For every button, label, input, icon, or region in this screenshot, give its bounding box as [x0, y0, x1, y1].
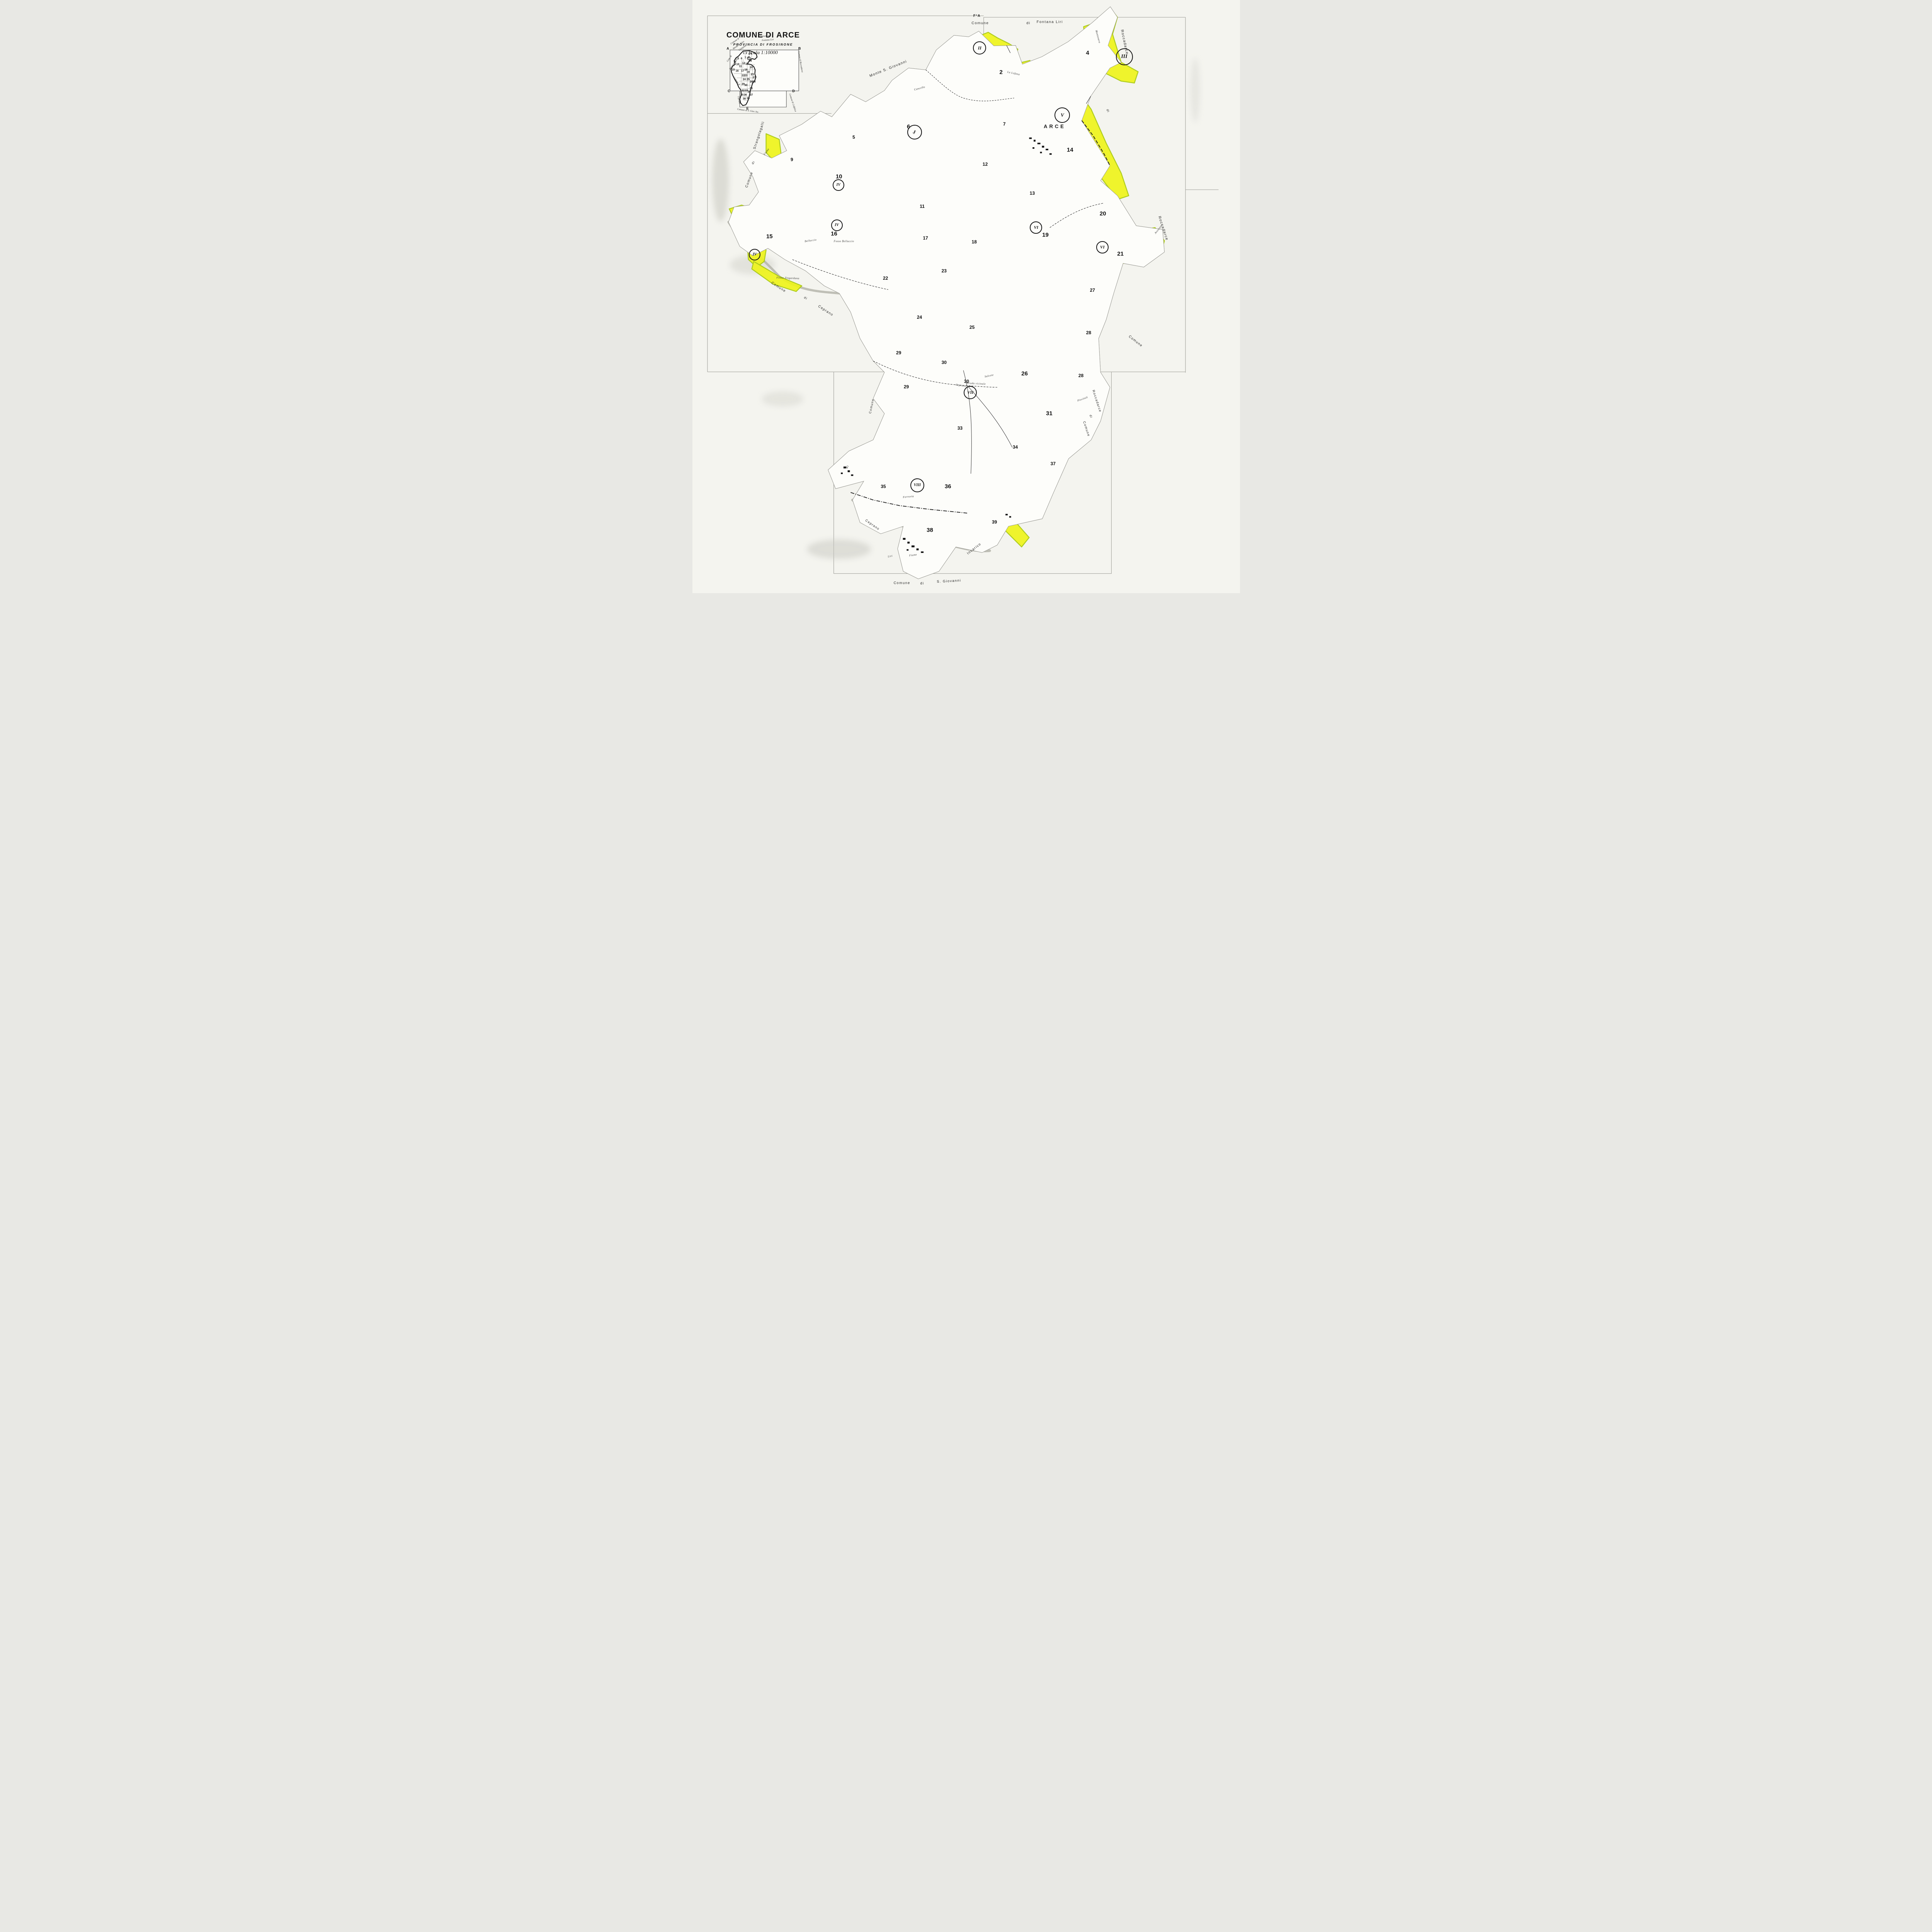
town-label-arce: ARCE	[1044, 124, 1066, 129]
title-block: COMUNE DI ARCE PROVINCIA DI FROSINONE Sc…	[726, 31, 800, 56]
commune-boundary	[728, 7, 1164, 579]
map-title: COMUNE DI ARCE	[726, 31, 800, 40]
river-strip-southwest	[752, 262, 801, 292]
map-subtitle: PROVINCIA DI FROSINONE	[726, 43, 800, 46]
map-drawing	[692, 0, 1240, 593]
map-scale: Scala 1:10000	[726, 49, 800, 56]
sheet-corner-label: F°A	[973, 14, 981, 18]
scanned-cadastral-map: COMUNE DI ARCE PROVINCIA DI FROSINONE Sc…	[692, 0, 1240, 593]
index-map-inset	[728, 49, 803, 107]
